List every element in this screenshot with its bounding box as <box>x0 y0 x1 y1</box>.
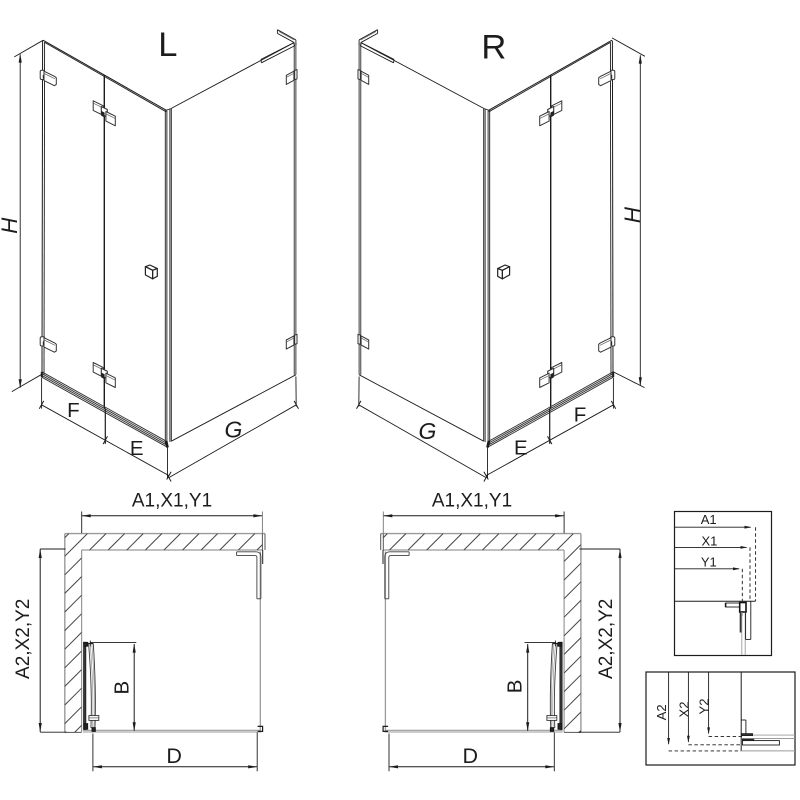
svg-text:X2: X2 <box>677 702 692 718</box>
svg-text:G: G <box>224 417 242 443</box>
svg-text:B: B <box>503 680 526 694</box>
svg-text:E: E <box>514 437 528 460</box>
svg-text:H: H <box>620 206 645 223</box>
svg-text:A1: A1 <box>701 512 717 527</box>
svg-text:A2,X2,Y2: A2,X2,Y2 <box>596 599 617 679</box>
svg-text:A2,X2,Y2: A2,X2,Y2 <box>13 599 34 679</box>
svg-text:L: L <box>158 26 177 64</box>
svg-text:A1,X1,Y1: A1,X1,Y1 <box>132 491 212 512</box>
svg-text:R: R <box>481 29 506 67</box>
svg-text:D: D <box>463 744 479 768</box>
svg-text:G: G <box>419 418 437 444</box>
svg-text:Y2: Y2 <box>696 699 711 715</box>
svg-text:A2: A2 <box>654 704 669 720</box>
svg-text:F: F <box>574 404 587 427</box>
svg-text:H: H <box>0 217 22 234</box>
svg-text:B: B <box>111 681 134 695</box>
svg-text:E: E <box>130 437 144 460</box>
svg-text:X1: X1 <box>701 534 717 549</box>
svg-text:A1,X1,Y1: A1,X1,Y1 <box>432 491 512 512</box>
svg-text:F: F <box>67 399 80 422</box>
svg-text:Y1: Y1 <box>701 555 717 570</box>
svg-text:D: D <box>166 744 182 768</box>
